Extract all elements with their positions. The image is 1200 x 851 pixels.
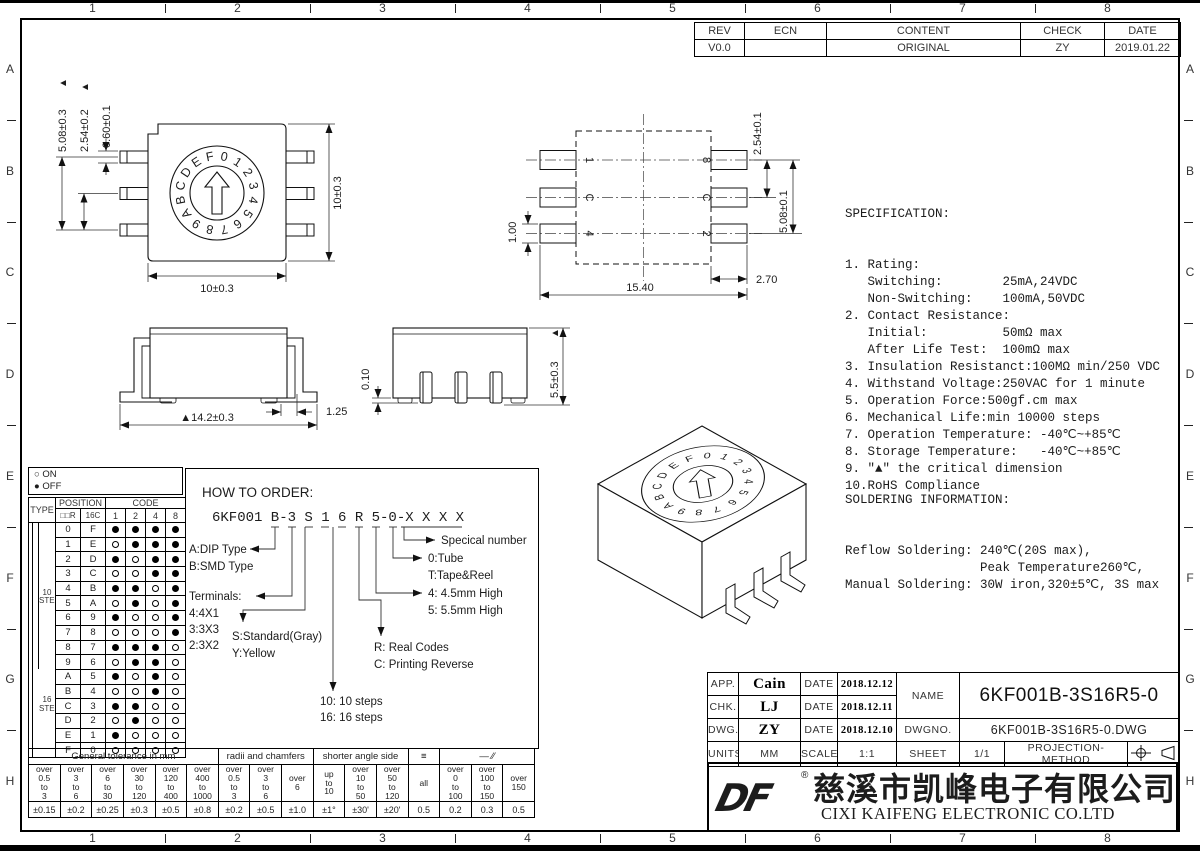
dial-character: 0: [703, 451, 711, 460]
code-dot-cell: [126, 523, 146, 538]
legend-item: ● OFF: [34, 481, 182, 493]
switch-off-dot: [152, 644, 159, 651]
drawn-date: 2018.12.10: [838, 719, 897, 742]
switch-off-dot: [112, 644, 119, 651]
switch-off-dot: [172, 556, 179, 563]
title-block: APP. Cain DATE 2018.12.12 NAME 6KF001B-3…: [707, 672, 1179, 767]
drawn-date-label: DATE: [801, 719, 838, 742]
switch-off-dot: [152, 688, 159, 695]
tolerance-range-cell: over 0.5 to 3: [29, 765, 61, 802]
drawing-label: 0.10: [360, 369, 372, 390]
switch-off-dot: [132, 600, 139, 607]
checked-by: LJ: [739, 696, 801, 719]
switch-off-dot: [152, 541, 159, 548]
switch-off-dot: [172, 526, 179, 533]
switch-off-dot: [132, 703, 139, 710]
tolerance-value-cell: ±0.2: [60, 802, 92, 818]
drawing-label: 2.70: [756, 274, 777, 286]
tolerance-group-header: shorter angle side: [313, 749, 408, 765]
text-line: Initial: 50mΩ max: [845, 325, 1190, 342]
text-line: Reflow Soldering: 240℃(20S max),: [845, 543, 1190, 560]
text-line: 6. Mechanical Life:min 10000 steps: [845, 410, 1190, 427]
switch-off-dot: [172, 600, 179, 607]
drawing-label: ▲14.2±0.3: [180, 412, 234, 424]
code-table: TYPEPOSITIONCODE□□R16C124810 STEP16 STEP…: [28, 497, 186, 758]
top-view-drawing: 0123456789ABCDEF 10±0.3 10±0.3 5.08±0.3 …: [56, 78, 344, 295]
tolerance-value-cell: ±0.3: [123, 802, 155, 818]
code-dot-cell: [106, 655, 126, 670]
code-dot-cell: [166, 684, 186, 699]
code-dot-cell: [166, 728, 186, 743]
tolerance-value-cell: ±0.5: [155, 802, 187, 818]
position-cell: 4: [56, 581, 81, 596]
code-dot-cell: [106, 537, 126, 552]
switch-on-dot: [172, 703, 179, 710]
code-dot-cell: [146, 596, 166, 611]
code-dot-cell: [126, 611, 146, 626]
company-block: DF ® 慈溪市凯峰电子有限公司 CIXI KAIFENG ELECTRONIC…: [707, 762, 1178, 832]
code-header: CODE: [106, 498, 186, 509]
registered-mark-icon: ®: [801, 770, 808, 781]
text-line: Peak Temperature260℃,: [845, 560, 1190, 577]
code-dot-cell: [146, 625, 166, 640]
switch-off-dot: [132, 526, 139, 533]
tolerance-value-cell: ±1°: [313, 802, 345, 818]
part-name: 6KF001B-3S16R5-0: [960, 673, 1179, 719]
legend-item: ○ ON: [34, 469, 182, 481]
footprint-dimensions: 1.00 2.54±0.1 5.08±0.1 2.70 15.40: [507, 112, 802, 300]
dial-character: C: [650, 483, 665, 490]
tolerance-range-cell: over 6: [282, 765, 314, 802]
switch-off-dot: [112, 526, 119, 533]
switch-on-dot: [152, 629, 159, 636]
tolerance-group-header: ≡: [408, 749, 440, 765]
text-line: 3. Insulation Resistanct:100MΩ min/250 V…: [845, 359, 1190, 376]
side-view-drawing: 0.10 5.5±0.3 ▲: [360, 328, 570, 415]
isometric-view-drawing: 0123456789ABCDEF: [598, 426, 806, 624]
text-line: Non-Switching: 100mA,50VDC: [845, 291, 1190, 308]
code-legend: ○ ON● OFF: [28, 467, 183, 495]
switch-off-dot: [112, 614, 119, 621]
position-16c-cell: D: [81, 552, 106, 567]
switch-on-dot: [132, 688, 139, 695]
code-dot-cell: [126, 537, 146, 552]
text-line: Switching: 25mA,24VDC: [845, 274, 1190, 291]
drawing-label: 10±0.3: [200, 283, 234, 295]
drawing-label: 5.08±0.1: [778, 190, 790, 233]
switch-off-dot: [132, 717, 139, 724]
switch-off-dot: [112, 732, 119, 739]
code-dot-cell: [146, 655, 166, 670]
code-dot-cell: [146, 552, 166, 567]
code-dot-cell: [146, 640, 166, 655]
type-group-label: 16 STEP: [39, 696, 55, 713]
code-dot-cell: [126, 655, 146, 670]
code-dot-cell: [166, 596, 186, 611]
switch-on-dot: [112, 629, 119, 636]
text-line: 5. Operation Force:500gf.cm max: [845, 393, 1190, 410]
code-dot-cell: [166, 537, 186, 552]
position-cell: 5: [56, 596, 81, 611]
text-line: After Life Test: 100mΩ max: [845, 342, 1190, 359]
drawing-number: 6KF001B-3S16R5-0.DWG: [960, 719, 1179, 742]
rev-header: REV: [695, 23, 745, 40]
code-dot-cell: [106, 640, 126, 655]
switch-off-dot: [172, 614, 179, 621]
switch-off-dot: [152, 526, 159, 533]
pin-label: C: [700, 194, 712, 202]
code-dot-cell: [166, 655, 186, 670]
front-view-drawing: 1.25 ▲14.2±0.3: [120, 328, 347, 430]
tolerance-value-cell: 0.5: [503, 802, 535, 818]
switch-on-dot: [172, 688, 179, 695]
code-dot-cell: [126, 552, 146, 567]
position-cell: A: [56, 669, 81, 684]
drawing-label: 5.5±0.3: [549, 361, 561, 398]
switch-on-dot: [112, 541, 119, 548]
type-header: TYPE: [29, 498, 56, 523]
switch-off-dot: [152, 570, 159, 577]
tolerance-range-cell: over 3 to 6: [250, 765, 282, 802]
position-16c-cell: C: [81, 567, 106, 582]
position-16c-cell: 1: [81, 728, 106, 743]
code-dot-cell: [166, 625, 186, 640]
switch-off-dot: [172, 585, 179, 592]
drawing-label: 0.60±0.1: [101, 105, 113, 148]
position-16c-cell: 7: [81, 640, 106, 655]
tolerance-group-header: General tolerance in mm: [29, 749, 219, 765]
text-line: 2. Contact Resistance:: [845, 308, 1190, 325]
tolerance-range-cell: over 150: [503, 765, 535, 802]
code-dot-cell: [126, 684, 146, 699]
switch-on-dot: [112, 688, 119, 695]
code-dot-cell: [146, 684, 166, 699]
switch-off-dot: [172, 570, 179, 577]
checked-label: CHK.: [708, 696, 739, 719]
tolerance-value-cell: 0.5: [408, 802, 440, 818]
switch-on-dot: [152, 585, 159, 592]
switch-off-dot: [152, 659, 159, 666]
pin-label: 2: [700, 230, 712, 236]
tolerance-value-cell: 0.2: [440, 802, 472, 818]
order-box-border: [185, 468, 539, 749]
checked-date-label: DATE: [801, 696, 838, 719]
tolerance-range-cell: over 0.5 to 3: [218, 765, 250, 802]
position-cell: 6: [56, 611, 81, 626]
switch-off-dot: [172, 629, 179, 636]
text-line: 1. Rating:: [845, 257, 1190, 274]
tolerance-value-cell: ±20': [376, 802, 408, 818]
position-cell: 0: [56, 523, 81, 538]
position-16c-cell: B: [81, 581, 106, 596]
position-cell: 9: [56, 655, 81, 670]
dial-character: 4: [740, 479, 755, 484]
switch-on-dot: [112, 570, 119, 577]
switch-on-dot: [132, 570, 139, 577]
drawing-label: 15.40: [626, 282, 654, 294]
switch-on-dot: [112, 659, 119, 666]
specification-title: SPECIFICATION:: [845, 206, 1190, 223]
code-dot-cell: [146, 699, 166, 714]
position-16c-cell: 4: [81, 684, 106, 699]
code-dot-cell: [146, 611, 166, 626]
type-group-label: 10 STEP: [39, 589, 55, 606]
position-cell: 8: [56, 640, 81, 655]
tolerance-range-cell: over 6 to 30: [92, 765, 124, 802]
position-16c-cell: 6: [81, 655, 106, 670]
code-dot-cell: [106, 669, 126, 684]
code-dot-cell: [166, 523, 186, 538]
code-dot-cell: [106, 699, 126, 714]
switch-on-dot: [172, 717, 179, 724]
drawn-label: DWG.: [708, 719, 739, 742]
position-cell: D: [56, 713, 81, 728]
switch-on-dot: [152, 703, 159, 710]
code-dot-cell: [146, 669, 166, 684]
switch-on-dot: [132, 673, 139, 680]
pin-label: 1: [583, 157, 595, 163]
switch-on-dot: [152, 600, 159, 607]
switch-on-dot: [132, 629, 139, 636]
switch-off-dot: [132, 644, 139, 651]
tolerance-value-cell: ±0.25: [92, 802, 124, 818]
tolerance-range-cell: over 120 to 400: [155, 765, 187, 802]
name-label: NAME: [897, 673, 960, 719]
code-row: 10 STEP16 STEP0F: [29, 523, 186, 538]
position-16c-cell: 9: [81, 611, 106, 626]
code-dot-cell: [126, 567, 146, 582]
drawing-label: 2.54±0.1: [752, 112, 764, 155]
approved-date-label: DATE: [801, 673, 838, 696]
switch-on-dot: [172, 732, 179, 739]
position-cell: 2: [56, 552, 81, 567]
checked-date: 2018.12.11: [838, 696, 897, 719]
drawing-label: ▲: [550, 328, 561, 338]
code-dot-cell: [126, 699, 146, 714]
code-dot-cell: [126, 625, 146, 640]
switch-on-dot: [172, 644, 179, 651]
drawing-label: 10±0.3: [332, 176, 344, 210]
code-dot-cell: [146, 581, 166, 596]
switch-off-dot: [152, 673, 159, 680]
position-cell: 1: [56, 537, 81, 552]
position-16c-cell: E: [81, 537, 106, 552]
tolerance-value-cell: ±0.8: [187, 802, 219, 818]
switch-off-dot: [112, 703, 119, 710]
tolerance-range-cell: over 3 to 6: [60, 765, 92, 802]
check-value: ZY: [1021, 40, 1105, 57]
tolerance-value-cell: ±0.2: [218, 802, 250, 818]
position-16c-cell: 8: [81, 625, 106, 640]
code-dot-cell: [146, 537, 166, 552]
switch-on-dot: [172, 659, 179, 666]
tolerance-value-cell: ±1.0: [282, 802, 314, 818]
code-dot-cell: [166, 640, 186, 655]
tolerance-value-cell: ±30': [345, 802, 377, 818]
type-group-cell: 10 STEP16 STEP: [29, 523, 56, 758]
code-dot-cell: [166, 699, 186, 714]
text-line: 7. Operation Temperature: -40℃~+85℃: [845, 427, 1190, 444]
soldering-block: SOLDERING INFORMATION: Reflow Soldering:…: [845, 458, 1190, 628]
code-dot-cell: [106, 611, 126, 626]
date-value: 2019.01.22: [1105, 40, 1181, 57]
switch-on-dot: [112, 717, 119, 724]
pin-label: 4: [583, 230, 595, 236]
code-weight-header: 8: [166, 509, 186, 523]
drawing-label: ▲: [58, 78, 69, 88]
code-dot-cell: [106, 552, 126, 567]
switch-off-dot: [112, 673, 119, 680]
position-16c-cell: 5: [81, 669, 106, 684]
position-header: POSITION: [56, 498, 106, 509]
code-dot-cell: [126, 640, 146, 655]
approved-date: 2018.12.12: [838, 673, 897, 696]
position-cell: B: [56, 684, 81, 699]
code-dot-cell: [106, 728, 126, 743]
code-dot-cell: [106, 625, 126, 640]
switch-off-dot: [172, 541, 179, 548]
position-16c-cell: F: [81, 523, 106, 538]
soldering-title: SOLDERING INFORMATION:: [845, 492, 1190, 509]
code-dot-cell: [126, 713, 146, 728]
switch-on-dot: [132, 614, 139, 621]
drawing-label: 2.54±0.2: [79, 109, 91, 152]
code-dot-cell: [126, 581, 146, 596]
code-weight-header: 4: [146, 509, 166, 523]
code-dot-cell: [146, 567, 166, 582]
check-header: CHECK: [1021, 23, 1105, 40]
tolerance-range-cell: over 400 to 1000: [187, 765, 219, 802]
tolerance-value-cell: ±0.15: [29, 802, 61, 818]
dial-character: 8: [695, 507, 703, 516]
tolerance-range-cell: over 10 to 50: [345, 765, 377, 802]
text-line: 4. Withstand Voltage:250VAC for 1 minute: [845, 376, 1190, 393]
code-dot-cell: [166, 611, 186, 626]
code-dot-cell: [106, 713, 126, 728]
code-dot-cell: [126, 728, 146, 743]
code-dot-cell: [166, 567, 186, 582]
position-cell: 7: [56, 625, 81, 640]
position-cell: 3: [56, 567, 81, 582]
tolerance-range-cell: over 50 to 120: [376, 765, 408, 802]
position-16c-cell: A: [81, 596, 106, 611]
tolerance-range-cell: all: [408, 765, 440, 802]
tolerance-group-header: radii and chamfers: [218, 749, 313, 765]
code-dot-cell: [106, 581, 126, 596]
footprint-view-drawing: 1 C 4 8 C 2 1.00 2.54±0.1 5.08±0.1: [507, 112, 802, 300]
dwgno-label: DWGNO.: [897, 719, 960, 742]
code-dot-cell: [166, 713, 186, 728]
approved-label: APP.: [708, 673, 739, 696]
switch-on-dot: [152, 614, 159, 621]
company-logo: DF: [713, 780, 773, 816]
pin-label: 8: [700, 157, 712, 163]
drawing-label: ▲: [80, 82, 91, 92]
code-dot-cell: [146, 713, 166, 728]
switch-on-dot: [112, 600, 119, 607]
rev-value: V0.0: [695, 40, 745, 57]
code-dot-cell: [146, 523, 166, 538]
switch-off-dot: [152, 556, 159, 563]
ecn-value: [745, 40, 827, 57]
code-dot-cell: [106, 596, 126, 611]
code-dot-cell: [106, 684, 126, 699]
tolerance-group-header: — ∕∕: [440, 749, 535, 765]
company-name-english: CIXI KAIFENG ELECTRONIC CO.LTD: [821, 804, 1177, 824]
drawing-sheet: 1122334455667788AABBCCDDEEFFGGHH: [0, 0, 1200, 851]
tolerance-range-cell: over 100 to 150: [471, 765, 503, 802]
switch-off-dot: [132, 659, 139, 666]
switch-off-dot: [132, 585, 139, 592]
approved-by: Cain: [739, 673, 801, 696]
drawn-by: ZY: [739, 719, 801, 742]
tolerance-value-cell: 0.3: [471, 802, 503, 818]
drawing-label: 1.25: [326, 406, 347, 418]
text-line: Manual Soldering: 30W iron,320±5℃, 3S ma…: [845, 577, 1190, 594]
position-cell: C: [56, 699, 81, 714]
switch-on-dot: [132, 732, 139, 739]
date-header: DATE: [1105, 23, 1181, 40]
tolerance-range-cell: up to 10: [313, 765, 345, 802]
soldering-lines: Reflow Soldering: 240℃(20S max), Peak Te…: [845, 543, 1190, 594]
code-dot-cell: [166, 581, 186, 596]
code-dot-cell: [126, 596, 146, 611]
code-dot-cell: [126, 669, 146, 684]
switch-off-dot: [112, 556, 119, 563]
tolerance-range-cell: over 30 to 120: [123, 765, 155, 802]
pin-label: C: [583, 194, 595, 202]
content-value: ORIGINAL: [827, 40, 1021, 57]
switch-on-dot: [152, 732, 159, 739]
switch-off-dot: [132, 541, 139, 548]
switch-on-dot: [152, 717, 159, 724]
position-cell: E: [56, 728, 81, 743]
position-16c-cell: 3: [81, 699, 106, 714]
side-view-leads: [420, 372, 502, 403]
revision-table: REV ECN CONTENT CHECK DATE V0.0 ORIGINAL…: [694, 22, 1181, 57]
type-bracket: [32, 523, 33, 757]
front-view-dimensions: 1.25 ▲14.2±0.3: [120, 394, 347, 430]
code-dot-cell: [166, 669, 186, 684]
tolerance-table: General tolerance in mmradii and chamfer…: [28, 748, 535, 818]
tolerance-value-cell: ±0.5: [250, 802, 282, 818]
code-dot-cell: [106, 567, 126, 582]
position-subheader: □□R: [56, 509, 81, 523]
switch-off-dot: [112, 585, 119, 592]
code-dot-cell: [166, 552, 186, 567]
content-header: CONTENT: [827, 23, 1021, 40]
code-dot-cell: [146, 728, 166, 743]
code-dot-cell: [106, 523, 126, 538]
switch-on-dot: [172, 673, 179, 680]
tolerance-range-cell: over 0 to 100: [440, 765, 472, 802]
position-subheader: 16C: [81, 509, 106, 523]
switch-on-dot: [132, 556, 139, 563]
drawing-label: 5.08±0.3: [57, 109, 69, 152]
code-weight-header: 2: [126, 509, 146, 523]
drawing-label: 1.00: [507, 222, 519, 243]
code-weight-header: 1: [106, 509, 126, 523]
ecn-header: ECN: [745, 23, 827, 40]
position-16c-cell: 2: [81, 713, 106, 728]
